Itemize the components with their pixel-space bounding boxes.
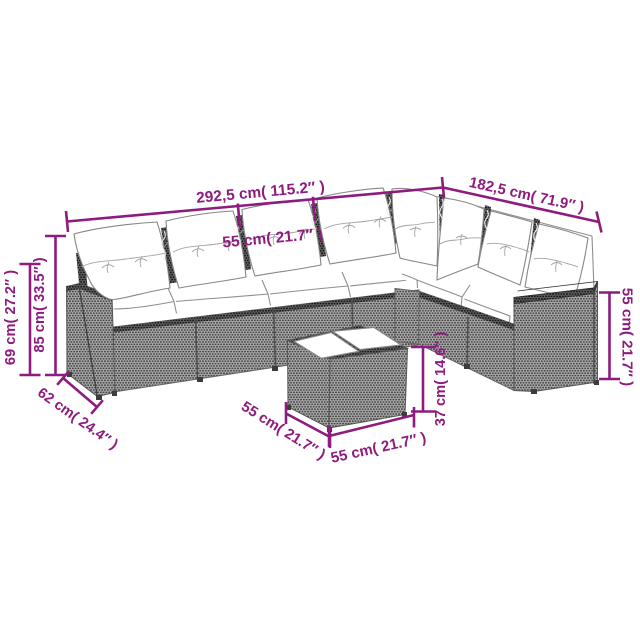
svg-text:55 cm( 21.7″ ): 55 cm( 21.7″ ): [619, 288, 636, 386]
svg-text:69 cm( 27.2″ ): 69 cm( 27.2″ ): [3, 270, 19, 365]
svg-text:85 cm( 33.5″ ): 85 cm( 33.5″ ): [32, 257, 48, 352]
svg-text:37 cm( 14.6″ ): 37 cm( 14.6″ ): [433, 332, 449, 427]
